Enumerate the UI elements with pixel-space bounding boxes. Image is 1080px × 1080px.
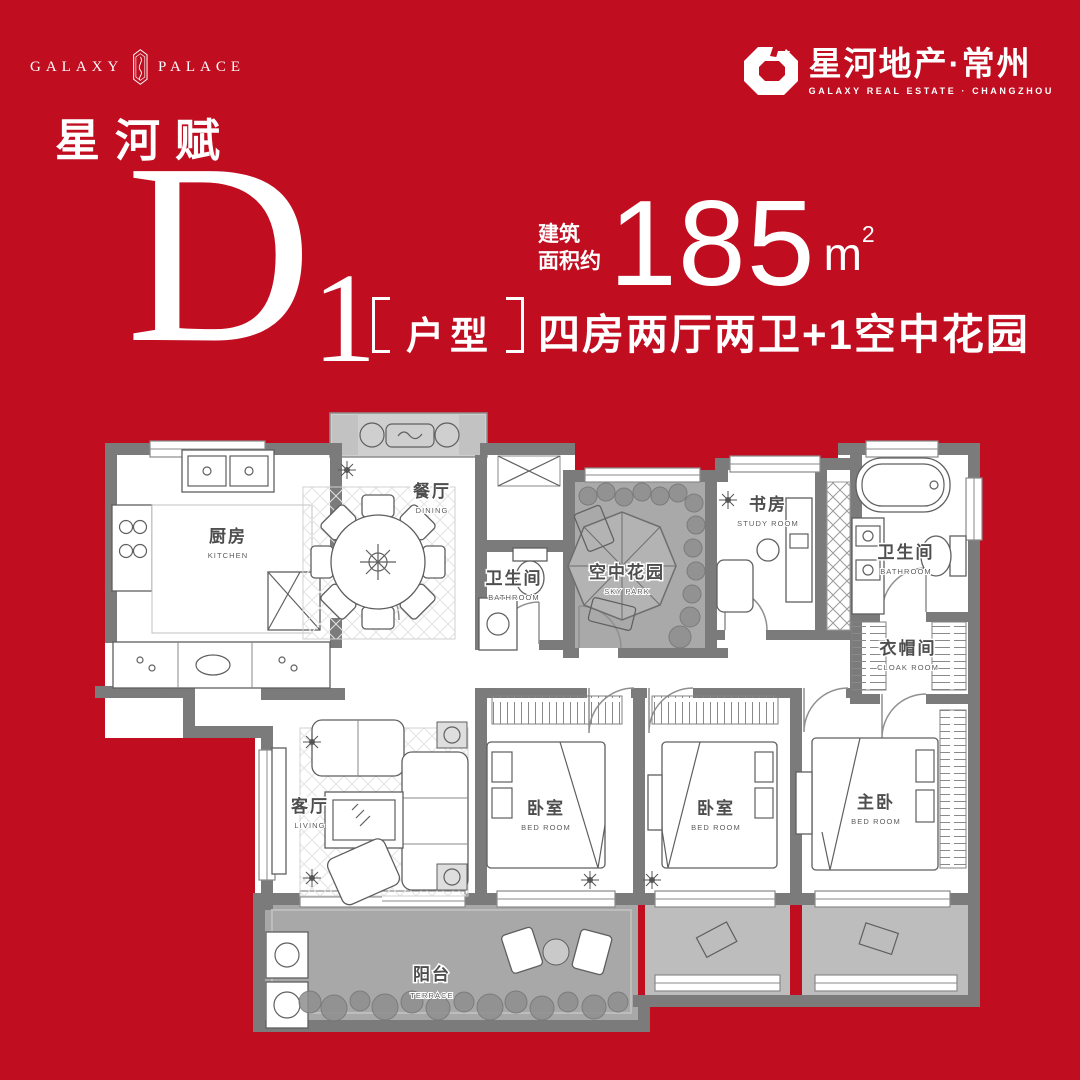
window-right-wall bbox=[966, 478, 982, 540]
bed2-wardrobe bbox=[652, 696, 778, 724]
svg-text:CLOAK ROOM: CLOAK ROOM bbox=[877, 663, 939, 672]
poster-background: GALAXY PALACE 星河赋 星河地产·常州 GALAXY REAL ES… bbox=[0, 0, 1080, 1080]
label-bed1: 卧室 bbox=[527, 798, 565, 818]
label-bathroom1: 卫生间 bbox=[486, 568, 543, 588]
bed1-wardrobe bbox=[492, 696, 622, 724]
toilet1-tank bbox=[513, 548, 547, 561]
window-balcony2 bbox=[655, 975, 780, 991]
svg-text:SKY PARK: SKY PARK bbox=[604, 587, 650, 596]
svg-text:BED ROOM: BED ROOM bbox=[851, 817, 901, 826]
bed2-dresser bbox=[648, 775, 662, 830]
label-study: 书房 bbox=[749, 494, 787, 514]
label-kitchen: 厨房 bbox=[209, 526, 247, 546]
duct-column bbox=[827, 482, 850, 630]
svg-text:DINING: DINING bbox=[416, 506, 449, 515]
laundry-sink bbox=[266, 932, 308, 978]
svg-text:KITCHEN: KITCHEN bbox=[208, 551, 249, 560]
svg-text:BATHROOM: BATHROOM bbox=[880, 567, 932, 576]
floor-plan: 厨房 KITCHEN 餐厅 DINING 卫生间 BATHROOM 空中花园 S… bbox=[0, 0, 1080, 1080]
svg-text:BED ROOM: BED ROOM bbox=[521, 823, 571, 832]
side-table-1 bbox=[437, 722, 467, 748]
bathtub-icon bbox=[856, 458, 950, 512]
svg-text:TERRACE: TERRACE bbox=[410, 991, 454, 1000]
label-dining: 餐厅 bbox=[413, 481, 451, 501]
vanity1 bbox=[479, 598, 517, 650]
window-balcony-master bbox=[815, 975, 957, 991]
window-bed1 bbox=[497, 891, 615, 907]
study-sofa bbox=[717, 560, 753, 612]
svg-text:BATHROOM: BATHROOM bbox=[488, 593, 540, 602]
window-study bbox=[730, 456, 820, 472]
toilet2-tank bbox=[950, 536, 966, 576]
tv-cabinet bbox=[272, 748, 286, 874]
terrace-table bbox=[543, 939, 569, 965]
kitchen-counter bbox=[113, 642, 330, 688]
wardrobe-right bbox=[932, 622, 966, 690]
window-skypark bbox=[585, 468, 700, 482]
desk-chair bbox=[757, 539, 779, 561]
label-living: 客厅 bbox=[290, 796, 329, 816]
window-master bbox=[815, 891, 950, 907]
window-bed2 bbox=[655, 891, 775, 907]
label-master: 主卧 bbox=[857, 792, 895, 812]
label-cloak: 衣帽间 bbox=[880, 638, 937, 658]
label-bed2: 卧室 bbox=[697, 798, 735, 818]
label-terrace: 阳台 bbox=[413, 964, 451, 984]
svg-text:STUDY ROOM: STUDY ROOM bbox=[737, 519, 799, 528]
master-wardrobe bbox=[940, 710, 966, 868]
label-bathroom2: 卫生间 bbox=[878, 542, 935, 562]
label-skypark: 空中花园 bbox=[589, 562, 665, 582]
room-bed2 bbox=[648, 696, 778, 868]
top-planter-bay bbox=[330, 413, 487, 457]
svg-text:BED ROOM: BED ROOM bbox=[691, 823, 741, 832]
window-bathroom2 bbox=[866, 441, 938, 457]
vanity2 bbox=[852, 518, 884, 614]
svg-text:LIVING: LIVING bbox=[294, 821, 325, 830]
room-bed1 bbox=[487, 696, 622, 868]
side-table-2 bbox=[437, 864, 467, 890]
master-dresser bbox=[796, 772, 812, 834]
desk bbox=[786, 498, 812, 602]
